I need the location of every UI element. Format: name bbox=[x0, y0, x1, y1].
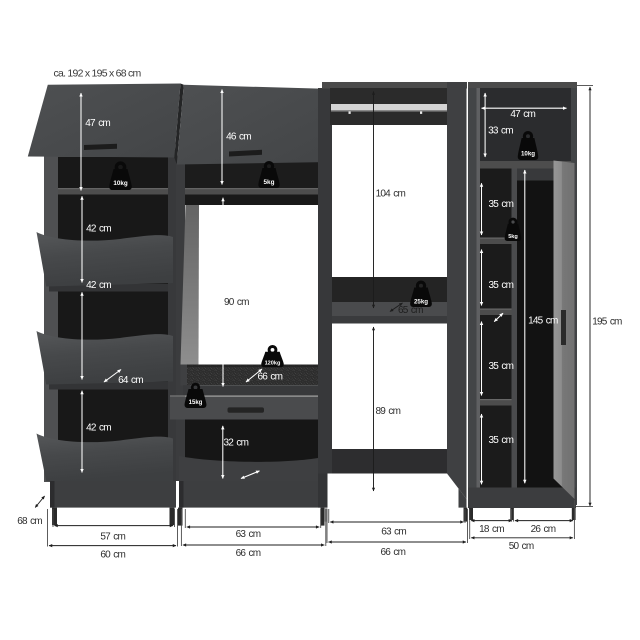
svg-text:89 cm: 89 cm bbox=[376, 406, 401, 417]
svg-text:35 cm: 35 cm bbox=[489, 435, 514, 446]
svg-text:65 cm: 65 cm bbox=[398, 305, 423, 316]
svg-text:35 cm: 35 cm bbox=[489, 361, 514, 372]
svg-text:5kg: 5kg bbox=[263, 179, 274, 186]
svg-text:63 cm: 63 cm bbox=[381, 527, 406, 538]
svg-text:50 cm: 50 cm bbox=[509, 541, 534, 552]
svg-text:104 cm: 104 cm bbox=[376, 189, 406, 200]
svg-text:33 cm: 33 cm bbox=[488, 126, 513, 137]
svg-text:18 cm: 18 cm bbox=[479, 524, 504, 535]
svg-text:42 cm: 42 cm bbox=[86, 280, 111, 291]
svg-text:ca. 192 x 195 x 68 cm: ca. 192 x 195 x 68 cm bbox=[54, 68, 142, 80]
svg-text:5kg: 5kg bbox=[508, 234, 518, 240]
svg-text:57 cm: 57 cm bbox=[100, 532, 125, 543]
svg-text:120kg: 120kg bbox=[265, 360, 281, 366]
svg-text:46 cm: 46 cm bbox=[226, 132, 251, 143]
svg-text:66 cm: 66 cm bbox=[236, 548, 261, 559]
svg-text:47 cm: 47 cm bbox=[510, 109, 535, 120]
svg-text:64 cm: 64 cm bbox=[118, 375, 143, 386]
svg-text:35 cm: 35 cm bbox=[489, 199, 514, 210]
svg-text:145 cm: 145 cm bbox=[528, 316, 558, 327]
svg-text:10kg: 10kg bbox=[521, 151, 535, 158]
svg-text:47 cm: 47 cm bbox=[85, 118, 110, 129]
svg-text:90 cm: 90 cm bbox=[224, 297, 249, 308]
svg-text:42 cm: 42 cm bbox=[86, 423, 111, 434]
svg-text:63 cm: 63 cm bbox=[236, 529, 261, 540]
svg-text:26 cm: 26 cm bbox=[531, 524, 556, 535]
svg-text:15kg: 15kg bbox=[189, 400, 203, 406]
svg-text:42 cm: 42 cm bbox=[86, 224, 111, 235]
svg-text:32 cm: 32 cm bbox=[224, 438, 249, 449]
svg-text:66 cm: 66 cm bbox=[258, 372, 283, 383]
svg-text:195 cm: 195 cm bbox=[592, 317, 622, 328]
svg-text:68 cm: 68 cm bbox=[17, 516, 42, 527]
svg-text:10kg: 10kg bbox=[113, 180, 128, 187]
svg-text:35 cm: 35 cm bbox=[489, 280, 514, 291]
svg-text:60 cm: 60 cm bbox=[100, 550, 125, 561]
svg-text:66 cm: 66 cm bbox=[381, 547, 406, 558]
